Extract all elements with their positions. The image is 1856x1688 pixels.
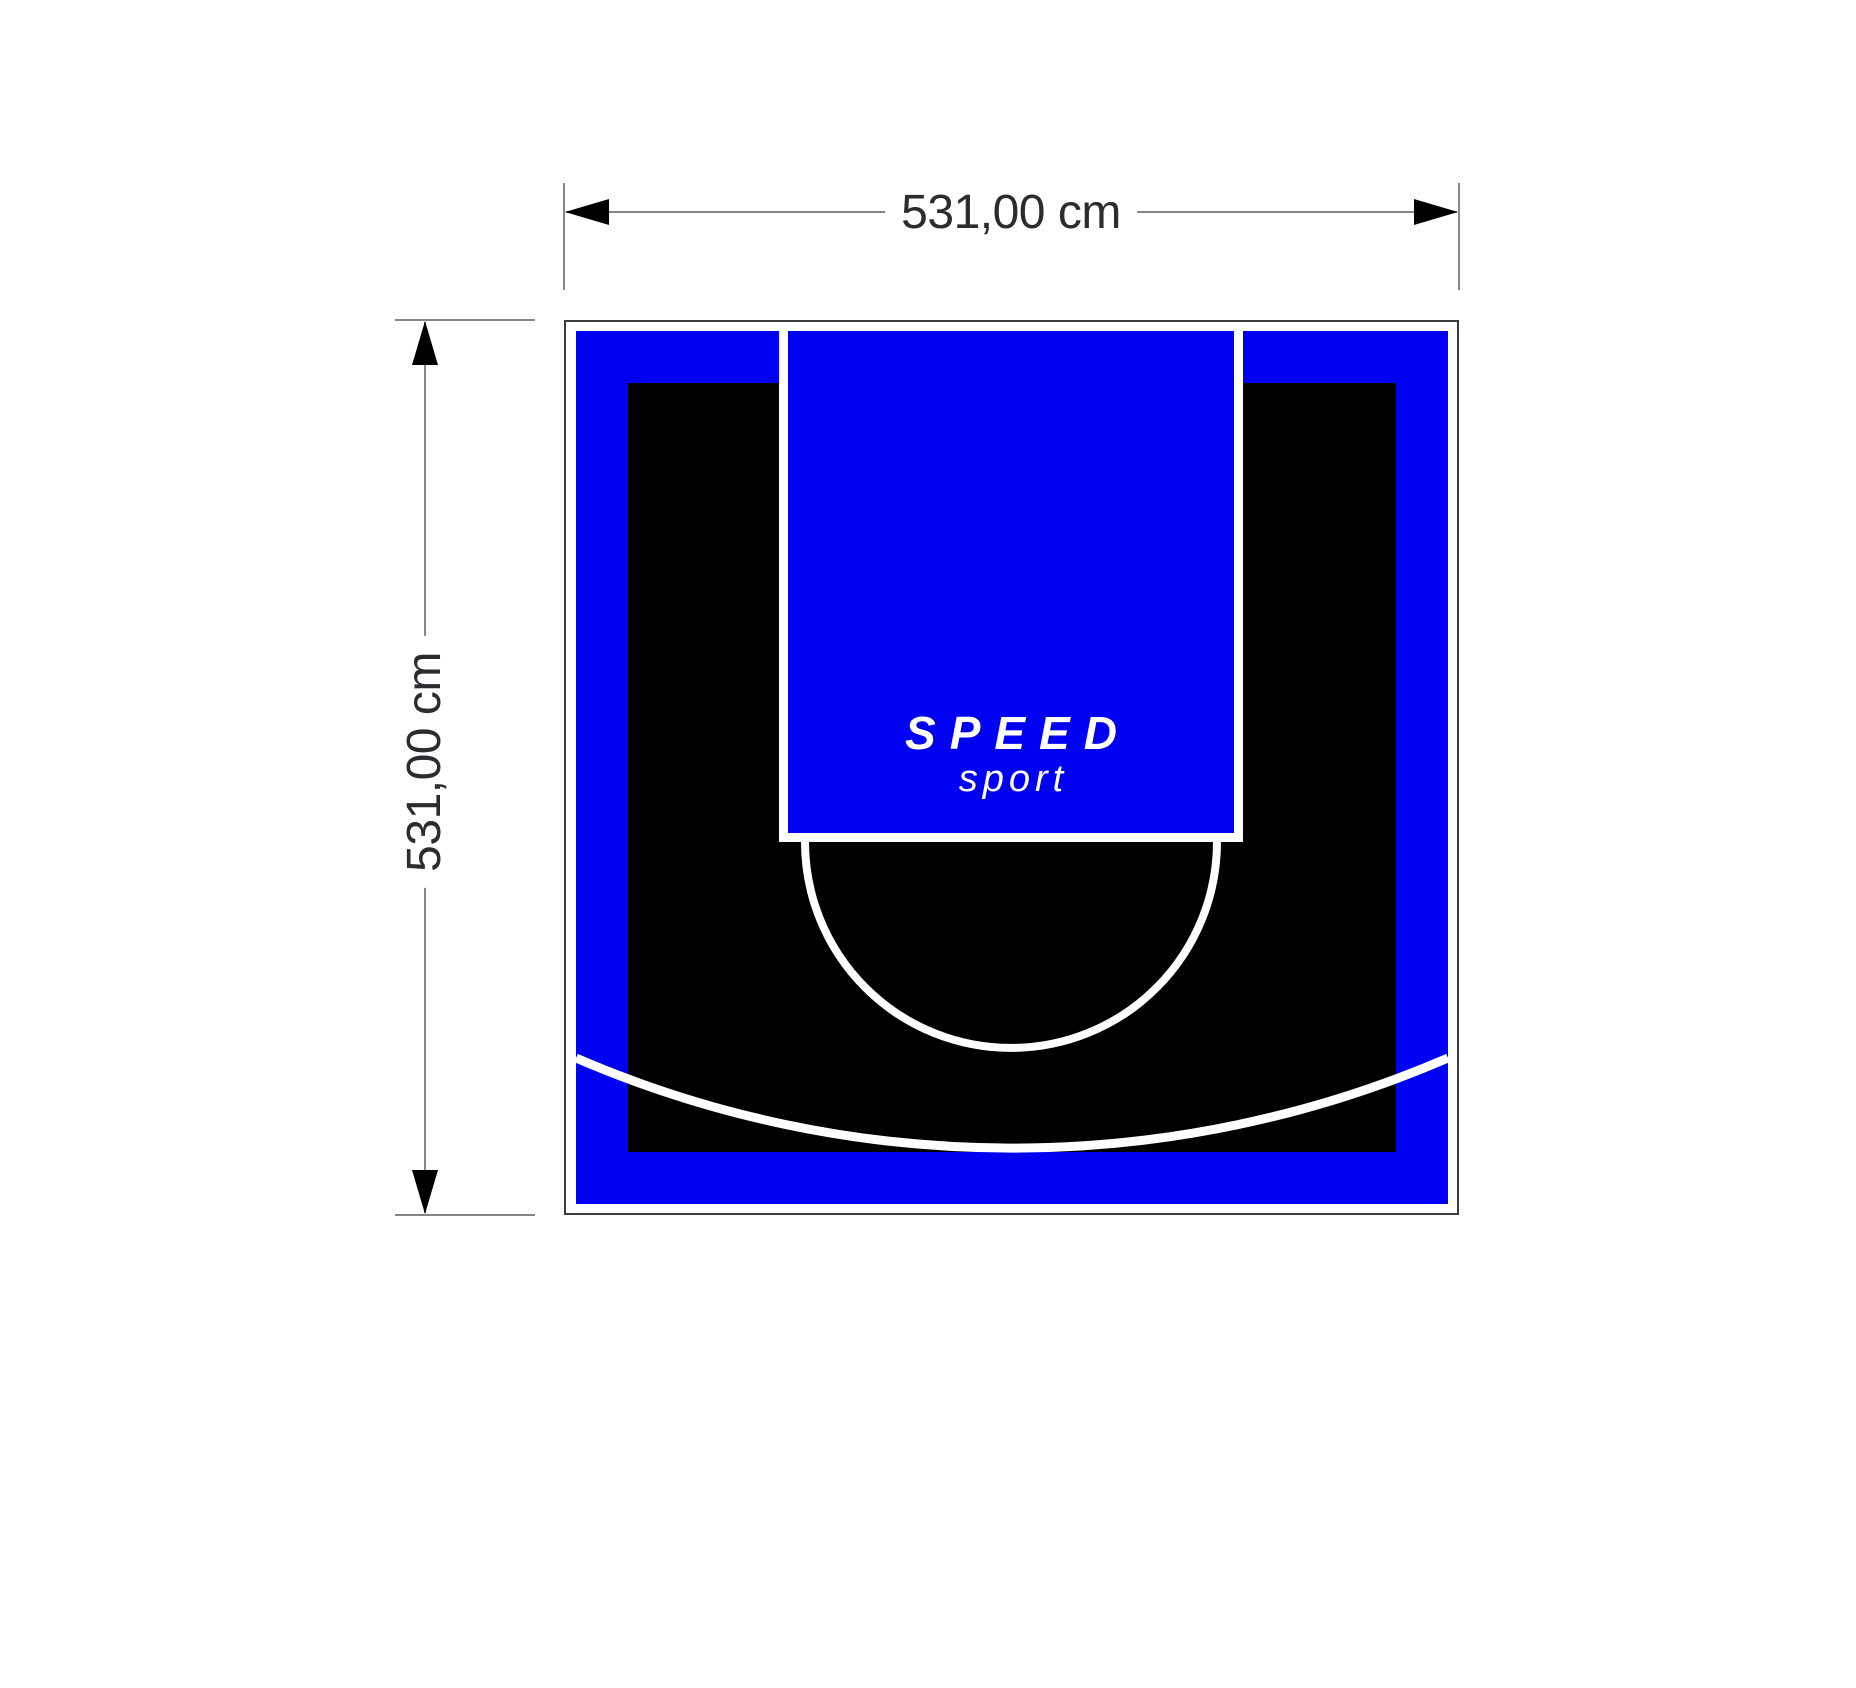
court-diagram: SPEED sport 531,00 cm 531,00 cm — [0, 0, 1856, 1688]
logo-speed-text: SPEED — [779, 710, 1243, 756]
logo-sport-text: sport — [779, 760, 1243, 798]
arrow-down-icon — [412, 1170, 438, 1214]
arrow-up-icon — [412, 321, 438, 365]
brand-logo: SPEED sport — [779, 710, 1243, 798]
arrow-right-icon — [1414, 199, 1458, 225]
arrow-left-icon — [565, 199, 609, 225]
left-dimension-tick-bottom — [395, 1214, 535, 1216]
width-dimension-label: 531,00 cm — [885, 184, 1137, 242]
top-dimension-tick-right — [1458, 183, 1460, 290]
height-dimension-label: 531,00 cm — [396, 636, 454, 888]
